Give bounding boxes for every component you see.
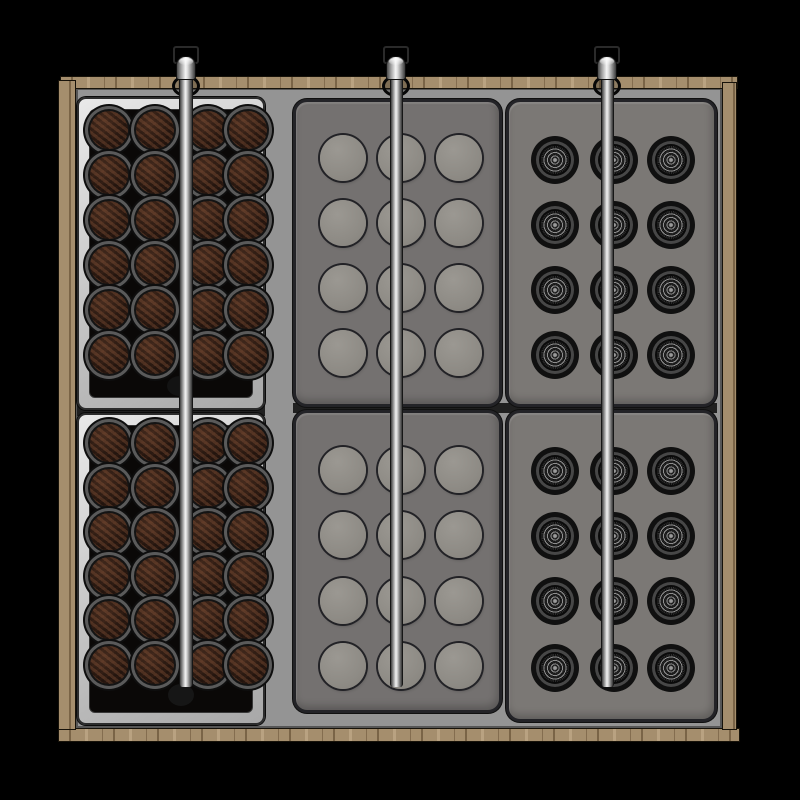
coffee-capsule — [136, 111, 174, 149]
rod-right-shaft — [601, 64, 614, 687]
capsule-tray-bottom-left — [77, 413, 265, 725]
empty-well — [320, 265, 366, 311]
drawer-insert-render — [0, 0, 800, 800]
coffee-capsule — [189, 601, 227, 639]
mesh-capsule — [657, 654, 685, 682]
empty-well — [320, 135, 366, 181]
mesh-capsule — [541, 654, 569, 682]
coffee-capsule — [189, 513, 227, 551]
rod-right-cap — [597, 56, 617, 80]
empty-well — [320, 330, 366, 376]
coffee-capsule — [136, 557, 174, 595]
mesh-capsule — [541, 276, 569, 304]
coffee-capsule — [189, 469, 227, 507]
coffee-capsule — [136, 201, 174, 239]
rod-middle-shaft — [390, 64, 403, 687]
mesh-capsule — [541, 587, 569, 615]
coffee-capsule — [189, 291, 227, 329]
coffee-capsule — [189, 246, 227, 284]
coffee-capsule — [189, 201, 227, 239]
rod-left-bottom-hole — [168, 684, 194, 706]
coffee-capsule — [90, 246, 128, 284]
empty-well — [320, 643, 366, 689]
empty-well — [436, 135, 482, 181]
mesh-capsule — [657, 276, 685, 304]
coffee-capsule — [229, 246, 267, 284]
mesh-capsule — [657, 146, 685, 174]
coffee-capsule — [90, 601, 128, 639]
coffee-capsule — [189, 424, 227, 462]
mesh-capsule — [657, 522, 685, 550]
wood-frame-left — [58, 80, 76, 730]
empty-well — [436, 330, 482, 376]
coffee-capsule — [229, 557, 267, 595]
coffee-capsule — [229, 424, 267, 462]
empty-well — [436, 200, 482, 246]
coffee-capsule — [189, 111, 227, 149]
coffee-capsule — [229, 201, 267, 239]
capsule-tray-face — [89, 425, 253, 713]
coffee-capsule — [90, 201, 128, 239]
empty-well — [436, 578, 482, 624]
empty-well — [320, 200, 366, 246]
coffee-capsule — [90, 291, 128, 329]
mesh-capsule — [541, 457, 569, 485]
wood-frame-right — [722, 82, 737, 730]
capsule-tray-face — [89, 109, 253, 398]
capsule-tray-top-left — [77, 97, 265, 410]
coffee-capsule — [229, 601, 267, 639]
coffee-capsule — [136, 336, 174, 374]
empty-well — [436, 265, 482, 311]
coffee-capsule — [90, 336, 128, 374]
empty-well — [436, 447, 482, 493]
coffee-capsule — [90, 513, 128, 551]
coffee-capsule — [90, 557, 128, 595]
mesh-capsule — [541, 146, 569, 174]
coffee-capsule — [229, 469, 267, 507]
coffee-capsule — [136, 291, 174, 329]
coffee-capsule — [90, 111, 128, 149]
wood-frame-bottom — [58, 728, 740, 742]
coffee-capsule — [229, 513, 267, 551]
mesh-capsule — [541, 522, 569, 550]
coffee-capsule — [136, 246, 174, 284]
rod-middle-cap — [386, 56, 406, 80]
coffee-capsule — [136, 469, 174, 507]
coffee-capsule — [136, 646, 174, 684]
coffee-capsule — [189, 156, 227, 194]
coffee-capsule — [136, 424, 174, 462]
rod-left-shaft — [179, 64, 193, 687]
empty-well — [320, 512, 366, 558]
coffee-capsule — [229, 156, 267, 194]
mesh-capsule — [657, 587, 685, 615]
coffee-capsule — [90, 469, 128, 507]
empty-well — [320, 578, 366, 624]
mesh-capsule — [541, 341, 569, 369]
coffee-capsule — [136, 156, 174, 194]
coffee-capsule — [229, 336, 267, 374]
coffee-capsule — [229, 646, 267, 684]
mesh-capsule — [657, 211, 685, 239]
coffee-capsule — [90, 646, 128, 684]
rod-left-cap — [176, 56, 196, 80]
empty-well — [436, 643, 482, 689]
empty-well — [436, 512, 482, 558]
coffee-capsule — [189, 557, 227, 595]
coffee-capsule — [136, 513, 174, 551]
empty-well — [320, 447, 366, 493]
mesh-capsule — [657, 457, 685, 485]
mesh-capsule — [657, 341, 685, 369]
coffee-capsule — [189, 646, 227, 684]
coffee-capsule — [90, 156, 128, 194]
coffee-capsule — [229, 291, 267, 329]
coffee-capsule — [136, 601, 174, 639]
coffee-capsule — [229, 111, 267, 149]
coffee-capsule — [90, 424, 128, 462]
coffee-capsule — [189, 336, 227, 374]
mesh-capsule — [541, 211, 569, 239]
